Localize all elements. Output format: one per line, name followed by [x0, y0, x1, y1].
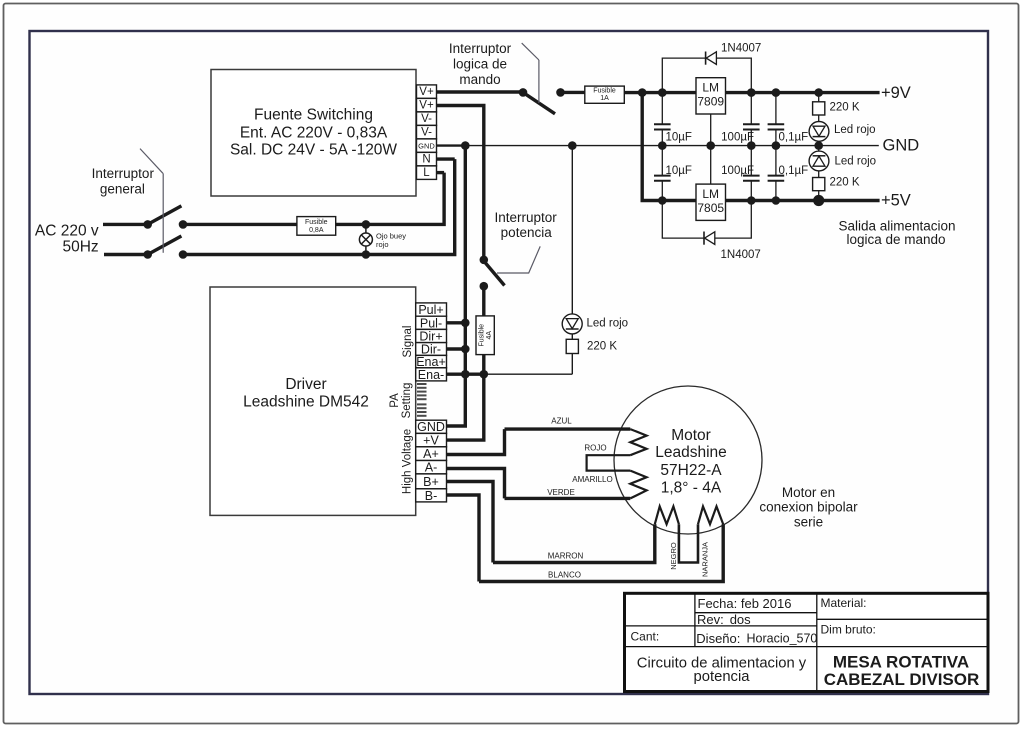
svg-text:V+: V+	[419, 100, 434, 112]
svg-text:Led rojo: Led rojo	[834, 124, 876, 136]
svg-text:AC 220 v: AC 220 v	[35, 223, 99, 240]
svg-text:220 K: 220 K	[830, 102, 860, 114]
svg-text:Led rojo: Led rojo	[835, 155, 877, 167]
svg-text:GND: GND	[418, 142, 435, 151]
svg-text:potencia: potencia	[501, 225, 553, 240]
svg-text:dos: dos	[730, 612, 751, 627]
svg-text:10µF: 10µF	[666, 132, 692, 144]
svg-text:1A: 1A	[600, 95, 609, 102]
svg-text:Leadshine: Leadshine	[655, 444, 727, 461]
svg-text:N: N	[422, 154, 430, 166]
svg-text:L: L	[423, 167, 430, 179]
svg-text:Signal: Signal	[402, 326, 414, 358]
svg-text:Ent. AC 220V - 0,83A: Ent. AC 220V - 0,83A	[240, 124, 388, 141]
svg-text:Ojo buey: Ojo buey	[376, 231, 406, 240]
svg-text:1N4007: 1N4007	[721, 249, 761, 261]
svg-text:A+: A+	[423, 447, 439, 461]
svg-text:V-: V-	[421, 113, 432, 125]
svg-text:VERDE: VERDE	[547, 488, 575, 497]
svg-text:7809: 7809	[697, 95, 724, 109]
svg-text:0,1µF: 0,1µF	[779, 132, 809, 144]
svg-text:1,8° - 4A: 1,8° - 4A	[661, 479, 722, 496]
svg-text:57H22-A: 57H22-A	[660, 462, 722, 479]
svg-text:AMARILLO: AMARILLO	[572, 475, 612, 484]
svg-text:Motor: Motor	[671, 427, 711, 444]
svg-text:Fusible: Fusible	[593, 88, 616, 95]
svg-text:general: general	[100, 182, 145, 197]
svg-text:logica de: logica de	[453, 57, 507, 72]
svg-text:serie: serie	[794, 515, 823, 530]
svg-text:Fusible: Fusible	[305, 219, 328, 226]
svg-text:mando: mando	[459, 72, 500, 87]
svg-text:1N4007: 1N4007	[721, 42, 761, 54]
svg-text:Material:: Material:	[821, 596, 867, 610]
svg-text:Fecha: feb 2016: Fecha: feb 2016	[698, 596, 792, 611]
svg-text:CABEZAL DIVISOR: CABEZAL DIVISOR	[824, 670, 980, 689]
svg-text:+V: +V	[423, 434, 439, 448]
svg-text:logica de mando: logica de mando	[846, 232, 945, 247]
svg-text:AZUL: AZUL	[551, 416, 572, 425]
svg-text:V-: V-	[421, 127, 432, 139]
svg-text:BLANCO: BLANCO	[548, 571, 581, 580]
svg-text:Driver: Driver	[285, 376, 326, 393]
svg-text:LM: LM	[702, 187, 719, 201]
svg-text:B+: B+	[423, 475, 439, 489]
svg-text:Pul-: Pul-	[420, 316, 442, 330]
svg-text:Fuente Switching: Fuente Switching	[254, 107, 373, 124]
svg-text:Interruptor: Interruptor	[449, 41, 512, 56]
svg-text:conexion bipolar: conexion bipolar	[759, 500, 858, 515]
svg-text:MARRON: MARRON	[548, 552, 584, 561]
svg-text:LM: LM	[702, 81, 719, 95]
svg-text:Setting: Setting	[401, 383, 413, 419]
svg-text:100µF: 100µF	[721, 165, 754, 177]
svg-text:NARANJA: NARANJA	[700, 542, 709, 577]
svg-text:GND: GND	[417, 420, 445, 434]
svg-text:Diseño:: Diseño:	[696, 631, 740, 646]
svg-text:+9V: +9V	[881, 84, 911, 102]
svg-text:220 K: 220 K	[587, 341, 617, 353]
svg-text:100µF: 100µF	[721, 132, 754, 144]
svg-text:A-: A-	[425, 461, 438, 475]
svg-text:Motor en: Motor en	[782, 485, 835, 500]
svg-text:Interruptor: Interruptor	[92, 166, 155, 181]
svg-text:Leadshine DM542: Leadshine DM542	[243, 394, 369, 411]
svg-text:Sal. DC 24V - 5A -120W: Sal. DC 24V - 5A -120W	[230, 142, 397, 159]
svg-text:High Voltage: High Voltage	[402, 429, 414, 494]
svg-text:GND: GND	[883, 137, 920, 155]
svg-text:PA: PA	[389, 393, 401, 408]
svg-text:Dir+: Dir+	[419, 330, 442, 344]
svg-text:V+: V+	[419, 86, 434, 98]
svg-text:Pul+: Pul+	[418, 303, 443, 317]
svg-text:rojo: rojo	[376, 240, 389, 249]
svg-text:B-: B-	[425, 489, 438, 503]
svg-text:Fusible: Fusible	[479, 324, 486, 347]
svg-text:50Hz: 50Hz	[63, 239, 99, 256]
svg-text:Dim bruto:: Dim bruto:	[821, 622, 876, 636]
svg-text:+5V: +5V	[881, 191, 911, 209]
svg-text:10µF: 10µF	[666, 165, 692, 177]
svg-text:220 K: 220 K	[830, 177, 860, 189]
svg-text:0,8A: 0,8A	[309, 227, 324, 234]
svg-text:MESA ROTATIVA: MESA ROTATIVA	[833, 653, 969, 672]
svg-text:Led rojo: Led rojo	[587, 318, 629, 330]
svg-text:Rev:: Rev:	[697, 612, 724, 627]
svg-text:Cant:: Cant:	[631, 629, 660, 643]
svg-text:0,1µF: 0,1µF	[779, 165, 809, 177]
svg-text:potencia: potencia	[694, 669, 751, 685]
svg-text:ROJO: ROJO	[584, 444, 606, 453]
svg-text:7805: 7805	[697, 201, 724, 215]
svg-text:NEGRO: NEGRO	[669, 542, 678, 570]
svg-text:Horacio_570: Horacio_570	[747, 631, 818, 645]
svg-text:4A: 4A	[486, 331, 493, 340]
svg-text:Interruptor: Interruptor	[494, 210, 557, 225]
svg-text:Ena-: Ena-	[418, 368, 444, 382]
